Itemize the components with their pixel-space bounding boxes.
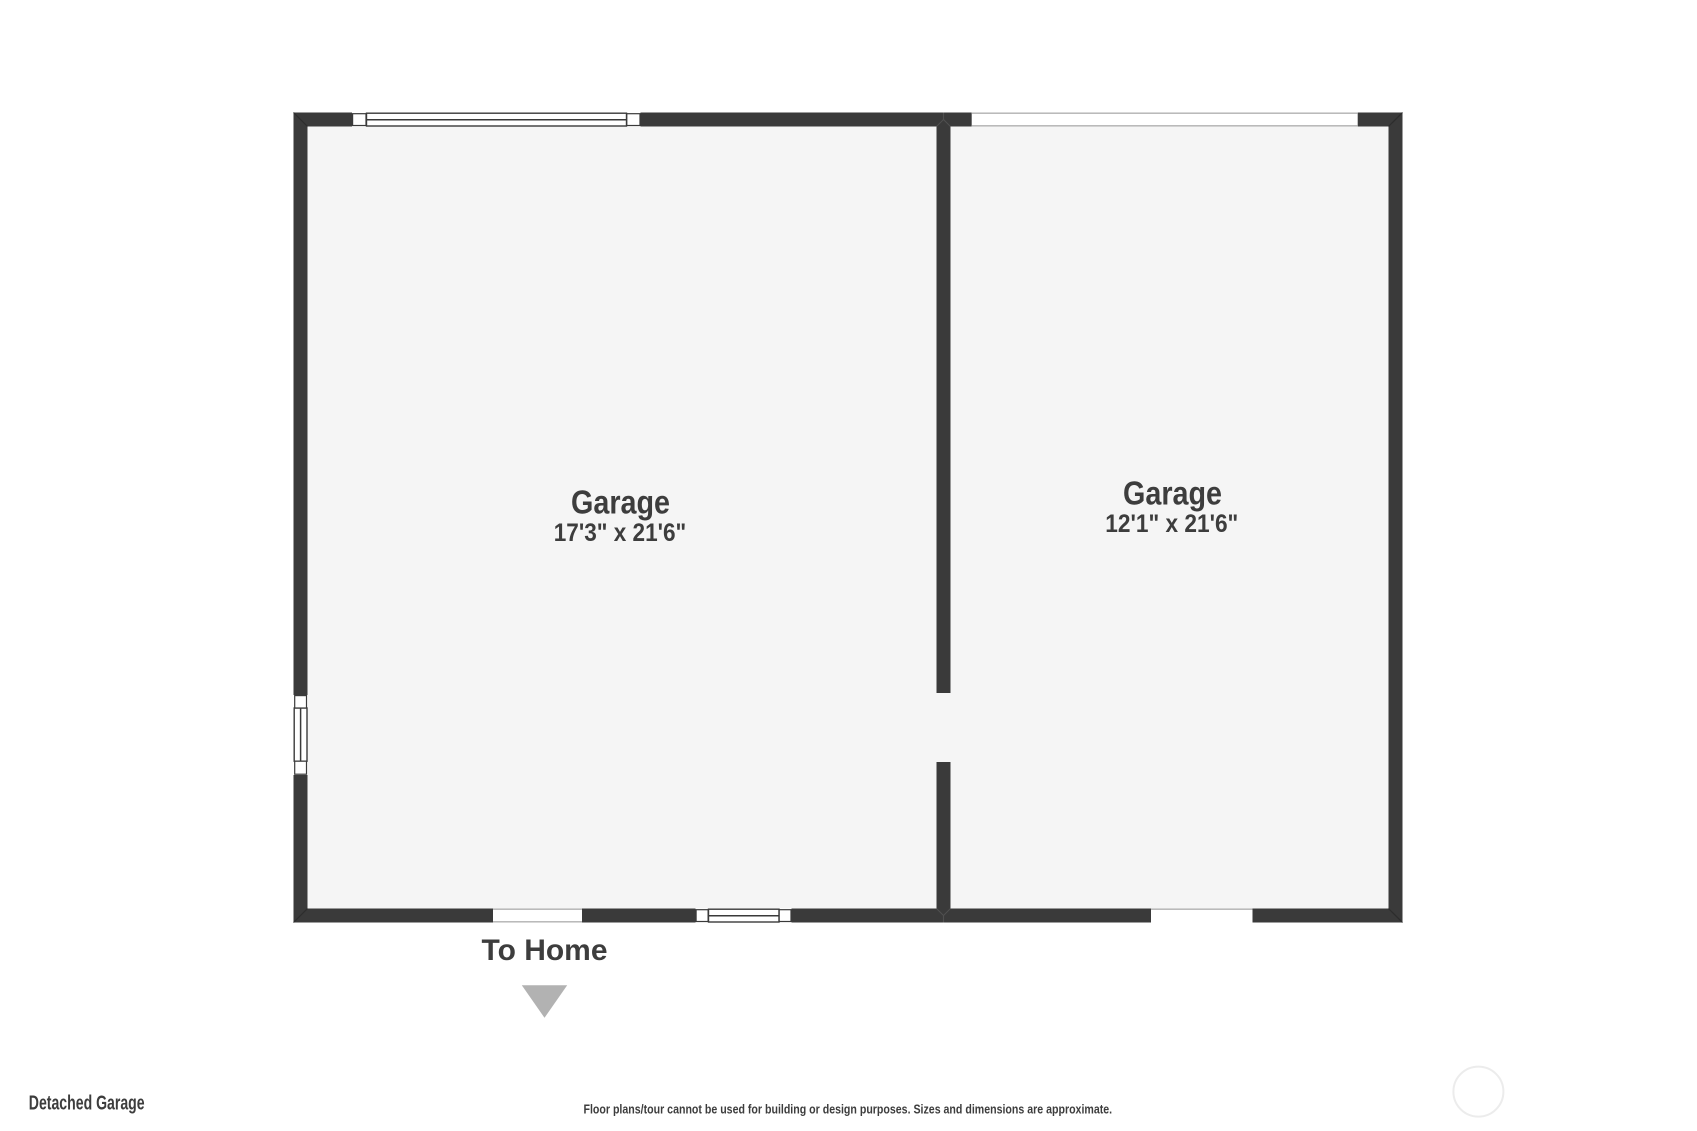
svg-text:Garage: Garage	[571, 484, 670, 521]
svg-text:12'1" x 21'6": 12'1" x 21'6"	[1105, 510, 1238, 538]
svg-text:Floor plans/tour cannot be use: Floor plans/tour cannot be used for buil…	[584, 1101, 1113, 1116]
svg-text:Detached Garage: Detached Garage	[29, 1092, 145, 1115]
svg-text:Garage: Garage	[1123, 475, 1222, 512]
svg-text:To Home: To Home	[482, 934, 608, 967]
svg-text:17'3" x 21'6": 17'3" x 21'6"	[554, 519, 687, 547]
